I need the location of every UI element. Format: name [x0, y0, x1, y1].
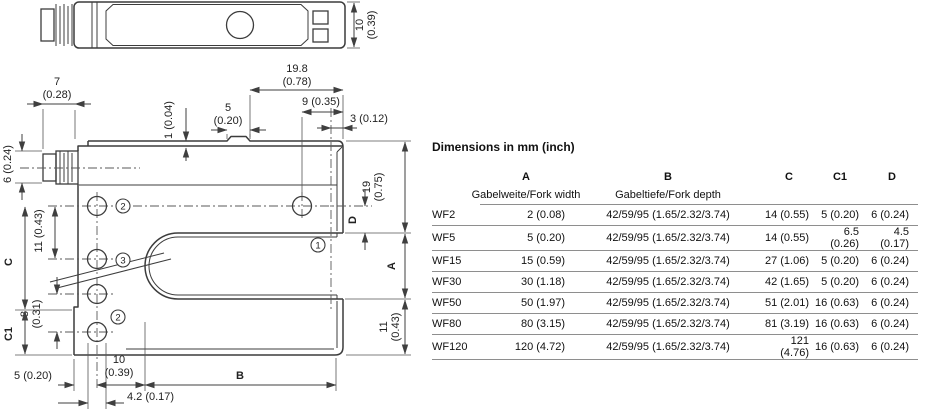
- table-row: WF2 2 (0.08) 42/59/95 (1.65/2.32/3.74) 1…: [432, 205, 918, 226]
- table-row: WF30 30 (1.18) 42/59/95 (1.65/2.32/3.74)…: [432, 272, 918, 293]
- sensor-body-top: [74, 2, 345, 48]
- value-B: 42/59/95 (1.65/2.32/3.74): [572, 226, 764, 251]
- fork-width-label: Gabelweite/Fork width: [472, 189, 581, 201]
- value-B: 42/59/95 (1.65/2.32/3.74): [572, 314, 764, 335]
- svg-text:C1: C1: [3, 327, 15, 341]
- table-row: WF5 5 (0.20) 42/59/95 (1.65/2.32/3.74) 1…: [432, 226, 918, 251]
- svg-text:(0.31): (0.31): [31, 300, 43, 329]
- value-D: 6 (0.24): [866, 314, 918, 335]
- value-B: 42/59/95 (1.65/2.32/3.74): [572, 293, 764, 314]
- led-indicator: [313, 29, 328, 42]
- dimensions-panel: Dimensions in mm (inch) A B C C1 D Gabel…: [432, 140, 937, 360]
- marker-3: 3: [116, 253, 130, 267]
- dim-A: A: [345, 234, 411, 299]
- dim-5-top: 5 (0.20): [211, 102, 266, 139]
- value-C1: 5 (0.20): [814, 272, 866, 293]
- front-panel: [106, 5, 308, 46]
- subheader-C1: [814, 186, 866, 205]
- value-B: 42/59/95 (1.65/2.32/3.74): [572, 251, 764, 272]
- value-A: 30 (1.18): [480, 272, 572, 293]
- fork-depth-label: Gabeltiefe/Fork depth: [615, 189, 721, 201]
- marker-1: 1: [311, 238, 325, 252]
- col-header-D: D: [866, 168, 918, 186]
- dim-11-left: 11 (0.43): [33, 207, 55, 258]
- model-name: WF5: [432, 226, 480, 251]
- svg-text:A: A: [386, 262, 398, 270]
- table-row: WF15 15 (0.59) 42/59/95 (1.65/2.32/3.74)…: [432, 251, 918, 272]
- svg-text:C: C: [3, 258, 15, 266]
- svg-text:(0.28): (0.28): [43, 89, 72, 101]
- fork-sensor-drawing: 10 (0.39): [0, 0, 430, 410]
- model-name: WF15: [432, 251, 480, 272]
- svg-text:6 (0.24): 6 (0.24): [2, 145, 14, 183]
- svg-text:(0.39): (0.39): [105, 367, 134, 379]
- svg-text:(0.43): (0.43): [390, 313, 402, 342]
- header-row: A B C C1 D: [432, 168, 918, 186]
- value-D: 4.5 (0.17): [866, 226, 918, 251]
- dim-connector-length: 7 (0.28): [27, 76, 91, 149]
- value-C: 51 (2.01): [764, 293, 814, 314]
- svg-text:9 (0.35): 9 (0.35): [302, 96, 340, 108]
- model-name: WF30: [432, 272, 480, 293]
- marker-2b: 2: [111, 310, 125, 324]
- value-C: 14 (0.55): [764, 205, 814, 226]
- value-C1: 6.5 (0.26): [814, 226, 866, 251]
- connector-base: [41, 9, 54, 41]
- model-name: WF80: [432, 314, 480, 335]
- table-title: Dimensions in mm (inch): [432, 140, 937, 154]
- svg-text:5 (0.20): 5 (0.20): [14, 370, 52, 382]
- svg-text:1 (0.04): 1 (0.04): [163, 101, 175, 139]
- value-C: 81 (3.19): [764, 314, 814, 335]
- value-C1: 16 (0.63): [814, 314, 866, 335]
- table-row: WF120 120 (4.72) 42/59/95 (1.65/2.32/3.7…: [432, 335, 918, 360]
- connector-threads: [56, 4, 72, 46]
- value-C1: 5 (0.20): [814, 251, 866, 272]
- subheader-A: Gabelweite/Fork width: [480, 186, 572, 205]
- led-indicator: [313, 11, 328, 24]
- svg-text:10: 10: [354, 19, 366, 31]
- svg-text:19.8: 19.8: [286, 63, 307, 75]
- svg-text:7: 7: [54, 76, 60, 88]
- svg-text:19: 19: [361, 181, 373, 193]
- svg-text:5: 5: [225, 102, 231, 114]
- svg-text:(0.39): (0.39): [366, 11, 378, 40]
- value-A: 2 (0.08): [480, 205, 572, 226]
- break-lines: [50, 253, 171, 288]
- value-A: 15 (0.59): [480, 251, 572, 272]
- value-A: 80 (3.15): [480, 314, 572, 335]
- svg-text:(0.75): (0.75): [373, 173, 385, 202]
- value-D: 6 (0.24): [866, 272, 918, 293]
- svg-text:3 (0.12): 3 (0.12): [350, 113, 388, 125]
- col-header-B: B: [572, 168, 764, 186]
- connector: [20, 151, 140, 184]
- value-A: 5 (0.20): [480, 226, 572, 251]
- table-row: WF50 50 (1.97) 42/59/95 (1.65/2.32/3.74)…: [432, 293, 918, 314]
- dimensions-table: A B C C1 D Gabelweite/Fork width Gabelti…: [432, 168, 918, 360]
- svg-text:(0.78): (0.78): [283, 76, 312, 88]
- value-C1: 16 (0.63): [814, 335, 866, 360]
- model-name: WF120: [432, 335, 480, 360]
- dim-6: 6 (0.24): [2, 134, 42, 200]
- svg-text:(0.20): (0.20): [214, 115, 243, 127]
- svg-text:4.2 (0.17): 4.2 (0.17): [127, 391, 174, 403]
- svg-text:D: D: [347, 216, 359, 224]
- value-A: 120 (4.72): [480, 335, 572, 360]
- lens-circle: [227, 12, 254, 39]
- dim-11-right: 11 (0.43): [346, 300, 411, 355]
- value-C1: 5 (0.20): [814, 205, 866, 226]
- value-D: 6 (0.24): [866, 293, 918, 314]
- svg-text:11 (0.43): 11 (0.43): [33, 209, 45, 252]
- value-D: 6 (0.24): [866, 205, 918, 226]
- dim-bottom: 5 (0.20) 10 (0.39) B 4.2 (0.17): [14, 322, 336, 409]
- value-B: 42/59/95 (1.65/2.32/3.74): [572, 205, 764, 226]
- value-C1: 16 (0.63): [814, 293, 866, 314]
- value-D: 6 (0.24): [866, 251, 918, 272]
- svg-text:10: 10: [113, 354, 125, 366]
- subheader-B: Gabeltiefe/Fork depth: [572, 186, 764, 205]
- page: 10 (0.39): [0, 0, 940, 410]
- front-view: 2 3 2 1 7 (0.28): [2, 63, 411, 409]
- value-B: 42/59/95 (1.65/2.32/3.74): [572, 335, 764, 360]
- value-C: 42 (1.65): [764, 272, 814, 293]
- value-C: 27 (1.06): [764, 251, 814, 272]
- dim-1: 1 (0.04): [163, 101, 186, 161]
- col-header-C: C: [764, 168, 814, 186]
- value-A: 50 (1.97): [480, 293, 572, 314]
- svg-text:3: 3: [120, 256, 125, 267]
- dim-3: 3 (0.12): [317, 113, 388, 128]
- col-header-C1: C1: [814, 168, 866, 186]
- svg-text:2: 2: [120, 202, 125, 213]
- subheader-D: [866, 186, 918, 205]
- svg-text:11: 11: [378, 321, 390, 332]
- svg-text:2: 2: [115, 313, 120, 324]
- value-D: 6 (0.24): [866, 335, 918, 360]
- subheader-C: [764, 186, 814, 205]
- value-C: 121 (4.76): [764, 335, 814, 360]
- subheader-row: Gabelweite/Fork width Gabeltiefe/Fork de…: [432, 186, 918, 205]
- value-B: 42/59/95 (1.65/2.32/3.74): [572, 272, 764, 293]
- col-header-A: A: [480, 168, 572, 186]
- dim-topview-height: 10 (0.39): [347, 2, 378, 48]
- col-header-model: [432, 168, 480, 186]
- dim-D: D: [347, 189, 365, 250]
- svg-text:1: 1: [315, 241, 320, 252]
- value-C: 14 (0.55): [764, 226, 814, 251]
- model-name: WF50: [432, 293, 480, 314]
- marker-2a: 2: [116, 199, 130, 213]
- table-row: WF80 80 (3.15) 42/59/95 (1.65/2.32/3.74)…: [432, 314, 918, 335]
- model-name: WF2: [432, 205, 480, 226]
- svg-text:B: B: [236, 370, 244, 382]
- top-view: 10 (0.39): [41, 2, 378, 48]
